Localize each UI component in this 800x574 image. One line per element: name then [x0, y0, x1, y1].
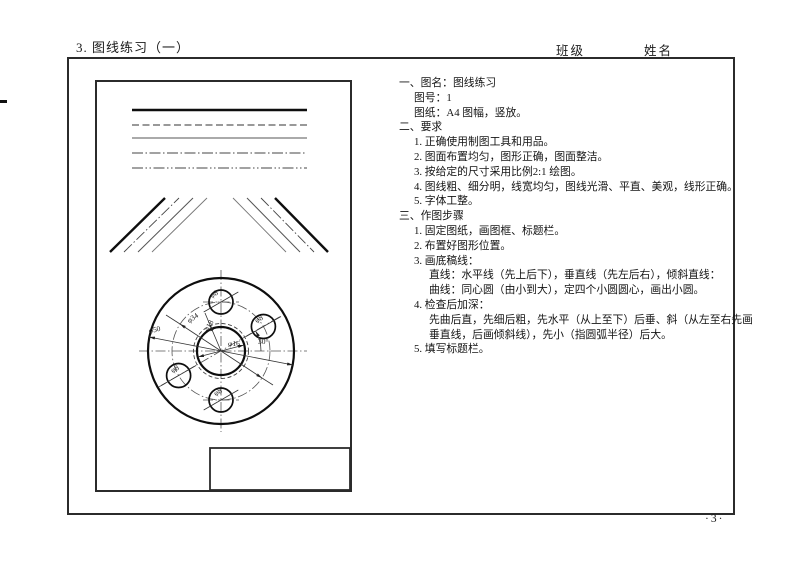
drawing-frame [96, 81, 351, 491]
dim-ext-bolt-ul [166, 315, 180, 324]
dash-dot-line [261, 198, 314, 252]
dim-label-bolt: φ34 [185, 311, 200, 325]
instruction-line: 直线：水平线（先上后下），垂直线（先左后右），倾斜直线： [429, 268, 733, 283]
instruction-line: 5. 字体工整。 [414, 194, 733, 209]
thin-solid-line [138, 198, 193, 252]
instruction-line: 4. 检查后加深： [414, 298, 733, 313]
horizontal-line-samples [132, 110, 307, 168]
instruction-line: 3. 画底稿线： [414, 254, 733, 269]
flange-circle-figure: φ50 φ34 φ18 φ16 30° φ8 φ8 φ8 φ8 [139, 270, 307, 432]
instruction-line: 图纸：A4 图幅，竖放。 [414, 106, 733, 121]
dim-ext-bolt-lr [262, 378, 273, 385]
page-number: ·3· [705, 513, 724, 525]
instruction-line: 1. 固定图纸，画图框、标题栏。 [414, 224, 733, 239]
dim-label-hole-left: φ8 [169, 363, 181, 375]
dim-label-center: φ16 [228, 339, 240, 348]
instruction-line: 垂直线，后画倾斜线），先小（指圆弧半径）后大。 [429, 328, 733, 343]
content-border-box: φ50 φ34 φ18 φ16 30° φ8 φ8 φ8 φ8 一、图名：图线练… [67, 57, 735, 515]
thick-solid-line [110, 198, 165, 252]
instruction-line: 2. 图面布置均匀，图形正确，图面整洁。 [414, 150, 733, 165]
instruction-line: 3. 按给定的尺寸采用比例2:1 绘图。 [414, 165, 733, 180]
title-block [210, 448, 350, 490]
dim-label-outer: φ50 [148, 324, 162, 335]
line-practice-drawing: φ50 φ34 φ18 φ16 30° φ8 φ8 φ8 φ8 [95, 80, 352, 492]
binding-mark [0, 100, 7, 103]
diagonal-line-samples-left [110, 198, 207, 252]
instruction-line: 一、图名：图线练习 [399, 76, 733, 91]
instruction-line: 三、作图步骤 [399, 209, 733, 224]
drawing-sheet: φ50 φ34 φ18 φ16 30° φ8 φ8 φ8 φ8 [95, 80, 352, 497]
instruction-panel: 一、图名：图线练习 图号：1 图纸：A4 图幅，竖放。 二、要求 1. 正确使用… [399, 76, 733, 357]
instruction-line: 二、要求 [399, 120, 733, 135]
page-title: 3. 图线练习（一） [76, 37, 190, 56]
dim-line-center-l [198, 351, 221, 357]
instruction-line: 先曲后直，先细后粗，先水平（从上至下）后垂、斜（从左至右先画 [429, 313, 733, 328]
instruction-line: 图号：1 [414, 91, 733, 106]
instruction-line: 2. 布置好图形位置。 [414, 239, 733, 254]
instruction-line: 1. 正确使用制图工具和用品。 [414, 135, 733, 150]
diagonal-line-samples-right [233, 198, 328, 252]
thin-solid-line [233, 198, 286, 252]
instruction-line: 5. 填写标题栏。 [414, 342, 733, 357]
thick-solid-line [275, 198, 328, 252]
dim-label-angle: 30° [258, 337, 269, 346]
instruction-line: 曲线：同心圆（由小到大），定四个小圆圆心，画出小圆。 [429, 283, 733, 298]
instruction-line: 4. 图线粗、细分明，线宽均匀，图线光滑、平直、美观，线形正确。 [414, 180, 733, 195]
thin-solid-line [247, 198, 300, 252]
dash-dot-line [124, 198, 179, 252]
dim-label-hidden: φ18 [202, 318, 216, 333]
thin-solid-line [152, 198, 207, 252]
